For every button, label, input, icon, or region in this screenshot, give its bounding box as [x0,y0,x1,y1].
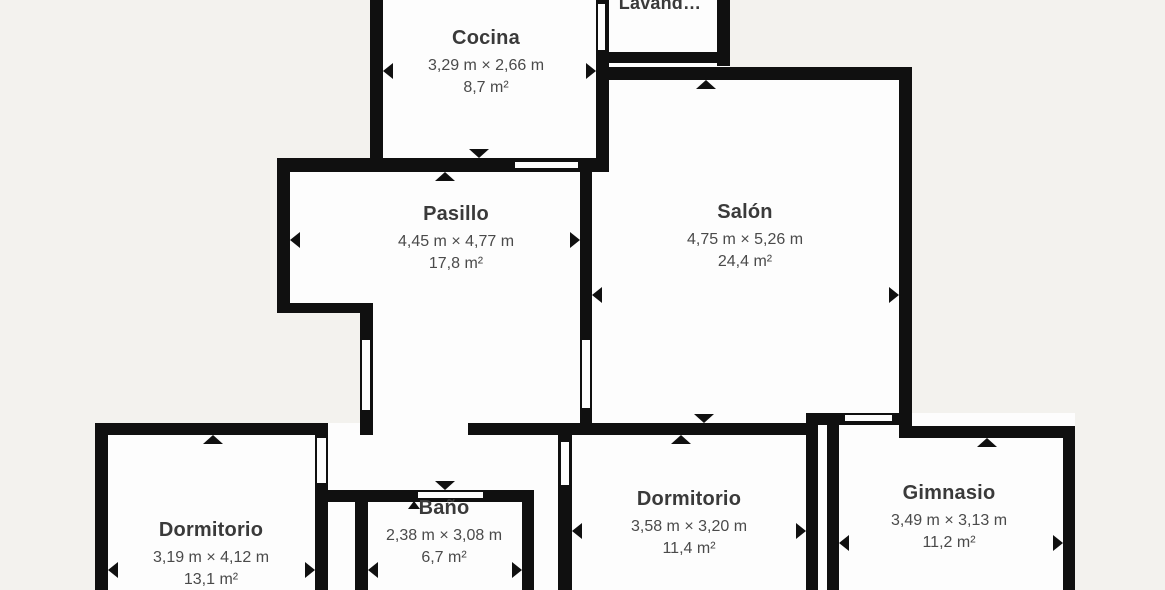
room-area: 17,8 m² [398,253,514,275]
room-dimensions: 3,29 m × 2,66 m [428,54,544,77]
salon-dim-arrow-left [592,287,602,303]
lavanderia-window [598,4,605,50]
gimnasio-left-wall [827,413,839,590]
bano-right-wall [522,490,534,590]
bano-dim-arrow-left [368,562,378,578]
gimnasio-top-wall [899,426,1075,438]
dormitorio-1-dim-arrow-up [203,435,223,444]
dormitorio-1-label: Dormitorio 3,19 m × 4,12 m 13,1 m² [153,518,269,590]
dormitorio-1-left-wall [95,423,108,590]
pasillo-dim-arrow-up [435,172,455,181]
room-name: Gimnasio [891,481,1007,505]
room-area: 13,1 m² [153,569,269,590]
salon-label: Salón 4,75 m × 5,26 m 24,4 m² [687,200,803,273]
dormitorio-2-right-wall [806,413,818,590]
lavanderia-right-wall [717,0,730,66]
wall-gap-sliver [818,425,827,590]
pasillo-salon-door [582,340,590,408]
bano-label: Baño 2,38 m × 3,08 m 6,7 m² [386,496,502,569]
pasillo-dim-arrow-left [290,232,300,248]
dormitorio-2-label: Dormitorio 3,58 m × 3,20 m 11,4 m² [631,487,747,560]
room-name: Dormitorio [631,487,747,511]
room-name: Baño [386,496,502,520]
room-dimensions: 3,49 m × 3,13 m [891,509,1007,532]
cocina-window [515,162,578,168]
room-name: Lavand… [619,0,701,15]
room-dimensions: 2,38 m × 3,08 m [386,524,502,547]
pasillo-step-wall [277,303,373,313]
room-area: 24,4 m² [687,251,803,273]
room-name: Cocina [428,26,544,50]
dormitorio-2-door [561,442,569,485]
room-name: Dormitorio [153,518,269,542]
salon-dim-arrow-down [694,414,714,423]
dormitorio-2-dim-arrow-up [671,435,691,444]
dormitorio-2-dim-arrow-left [572,523,582,539]
gimnasio-label: Gimnasio 3,49 m × 3,13 m 11,2 m² [891,481,1007,554]
pasillo-dim-arrow-down [435,481,455,490]
salon-bottom-wall [468,423,818,435]
room-name: Salón [687,200,803,224]
cocina-dim-arrow-right [586,63,596,79]
floor-plan: Cocina 3,29 m × 2,66 m 8,7 m² Lavand… Pa… [0,0,1165,590]
cocina-dim-arrow-left [383,63,393,79]
dormitorio-2-dim-arrow-right [796,523,806,539]
gimnasio-dim-arrow-up [977,438,997,447]
room-dimensions: 3,58 m × 3,20 m [631,515,747,538]
pasillo-left-wall [277,158,290,313]
salon-dim-arrow-right [889,287,899,303]
room-dimensions: 3,19 m × 4,12 m [153,546,269,569]
salon-top-wall [596,67,912,80]
room-area: 6,7 m² [386,547,502,569]
room-area: 11,2 m² [891,532,1007,554]
dormitorio-1-door [317,438,326,483]
room-dimensions: 4,75 m × 5,26 m [687,228,803,251]
dormitorio-1-top-wall [95,423,328,435]
dormitorio-1-dim-arrow-right [305,562,315,578]
salon-right-wall [899,67,912,438]
gimnasio-window [845,415,892,421]
cocina-dim-arrow-down [469,149,489,158]
lavanderia-bottom-wall [596,52,730,63]
room-name: Pasillo [398,202,514,226]
bano-left-wall [355,490,368,590]
gimnasio-right-wall [1063,426,1075,590]
pasillo-dim-arrow-right [570,232,580,248]
salon-dim-arrow-up [696,80,716,89]
pasillo-west-window [362,340,370,410]
lavanderia-label: Lavand… [619,0,701,15]
cocina-label: Cocina 3,29 m × 2,66 m 8,7 m² [428,26,544,99]
pasillo-label: Pasillo 4,45 m × 4,77 m 17,8 m² [398,202,514,275]
dormitorio-1-dim-arrow-left [108,562,118,578]
room-area: 11,4 m² [631,538,747,560]
gimnasio-dim-arrow-left [839,535,849,551]
bano-dim-arrow-right [512,562,522,578]
gimnasio-dim-arrow-right [1053,535,1063,551]
cocina-left-wall [370,0,383,172]
room-area: 8,7 m² [428,77,544,99]
room-dimensions: 4,45 m × 4,77 m [398,230,514,253]
